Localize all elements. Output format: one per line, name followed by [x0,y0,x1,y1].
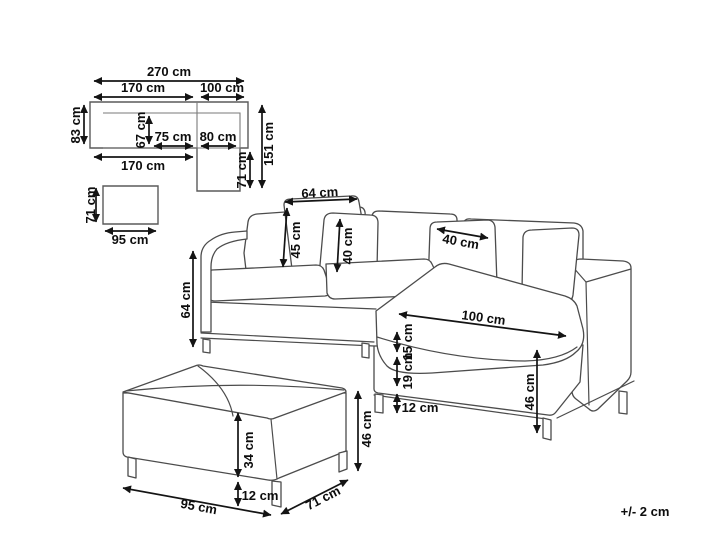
sofa-leg-chaise-right [543,418,551,440]
sofa-front-crease [206,302,376,309]
dim-label-base-width: 170 cm [121,158,165,173]
dim-label-back-cushion-width: 64 cm [301,184,339,201]
sofa-leg-right-arm [619,391,627,414]
dim-label-body-depth: 83 cm [68,107,83,144]
ottoman-drawing [123,365,347,507]
dim-label-total-width: 270 cm [147,64,191,79]
dim-label-left-section: 170 cm [121,80,165,95]
ottoman-leg-right [339,451,347,472]
top-view-sofa-dimensions: 270 cm 170 cm 100 cm 83 cm 67 cm 75 cm 8… [68,64,276,188]
diagram-svg: 270 cm 170 cm 100 cm 83 cm 67 cm 75 cm 8… [0,0,720,540]
tolerance-note: +/- 2 cm [621,504,670,519]
sofa-base-rail-top [201,333,374,342]
dim-label-ottoman-depth: 71 cm [303,483,343,513]
dim-label-frame-height: 19 cm [400,353,415,390]
sofa-seat-cushion-1 [208,265,330,301]
sofa-leg-front-left [203,339,210,353]
dim-label-ottoman-width: 95 cm [179,496,218,517]
top-view-ottoman-dimensions: 71 cm 95 cm [83,187,156,247]
ottoman-leg-left [128,457,136,478]
dim-label-ottoman-body-height: 34 cm [241,432,256,469]
dim-label-ottoman-top-depth: 71 cm [83,187,98,224]
sofa-base-rail-bottom [201,338,374,346]
dim-label-chaise-seat-width: 80 cm [200,129,237,144]
dim-label-seat-depth: 67 cm [133,112,148,149]
dimension-diagram: 270 cm 170 cm 100 cm 83 cm 67 cm 75 cm 8… [0,0,720,540]
dim-label-chaise-extension: 71 cm [234,152,249,189]
dim-label-ottoman-total-height: 46 cm [359,411,374,448]
dim-label-armrest-height: 64 cm [178,282,193,319]
dim-label-back-cushion-height: 45 cm [288,222,303,259]
sofa-leg-mid [362,343,369,358]
top-view-ottoman-outline [103,186,158,224]
dim-label-left-seat-width: 75 cm [155,129,192,144]
dim-label-ottoman-top-width: 95 cm [112,232,149,247]
top-view-ottoman-shape [103,186,158,224]
dim-label-leg-height: 12 cm [402,400,439,415]
dim-label-chaise-section: 100 cm [200,80,244,95]
sofa-leg-chaise-left [375,394,383,413]
dim-label-seat-height: 46 cm [522,374,537,411]
dim-label-total-depth: 151 cm [261,122,276,166]
dim-label-pillow-height: 40 cm [340,228,355,265]
dim-label-ottoman-leg-height: 12 cm [242,488,279,503]
